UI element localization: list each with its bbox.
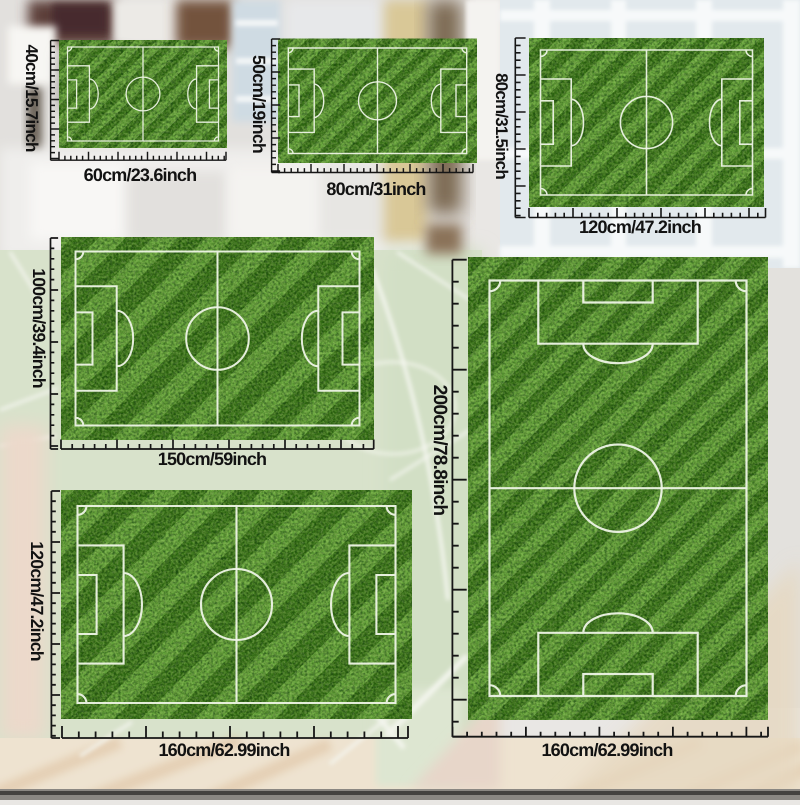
svg-text:50cm/19inch: 50cm/19inch	[249, 55, 269, 153]
svg-text:150cm/59inch: 150cm/59inch	[158, 449, 266, 469]
svg-text:160cm/62.99inch: 160cm/62.99inch	[158, 740, 289, 760]
svg-text:80cm/31inch: 80cm/31inch	[326, 179, 425, 199]
svg-text:60cm/23.6inch: 60cm/23.6inch	[84, 165, 197, 185]
svg-text:80cm/31.5inch: 80cm/31.5inch	[492, 73, 511, 179]
svg-text:40cm/15.7inch: 40cm/15.7inch	[22, 44, 42, 151]
svg-text:100cm/39.4inch: 100cm/39.4inch	[29, 268, 49, 388]
svg-text:120cm/47.2inch: 120cm/47.2inch	[27, 541, 47, 661]
svg-text:200cm/78.8inch: 200cm/78.8inch	[429, 385, 450, 516]
svg-text:160cm/62.99inch: 160cm/62.99inch	[541, 740, 672, 760]
svg-text:120cm/47.2inch: 120cm/47.2inch	[579, 217, 701, 237]
